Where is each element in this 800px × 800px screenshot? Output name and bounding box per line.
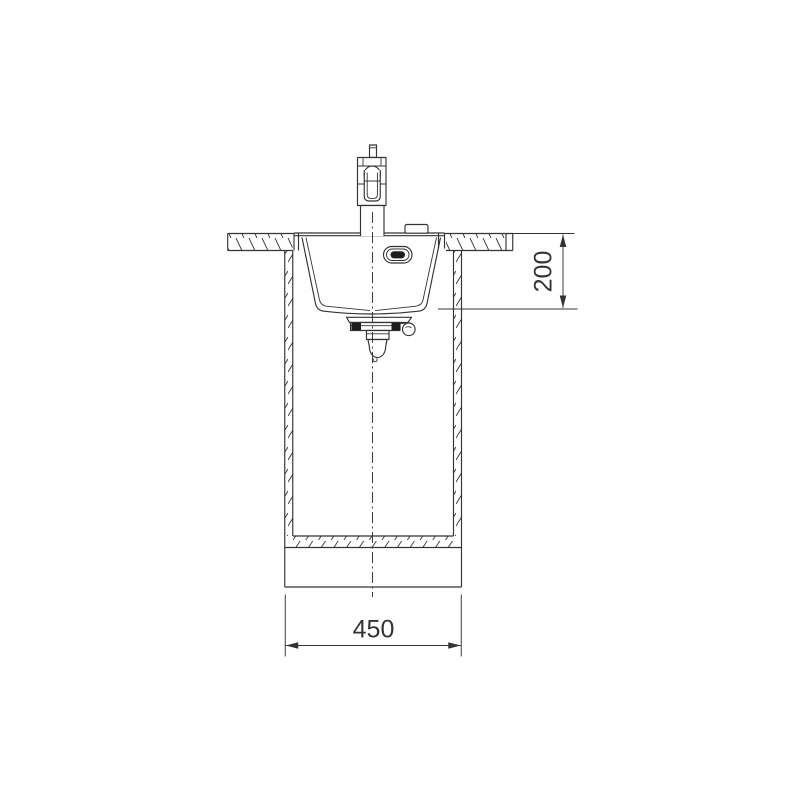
countertop-left-hatch bbox=[228, 234, 293, 251]
depth-dimension-label: 200 bbox=[530, 251, 558, 293]
faucet-head bbox=[358, 158, 387, 206]
cabinet-plinth bbox=[285, 548, 462, 588]
drain-neck bbox=[367, 331, 390, 340]
drain-bell bbox=[368, 340, 387, 362]
cabinet-left-wall bbox=[285, 251, 293, 548]
cabinet-bottom-panel bbox=[293, 536, 454, 548]
overflow-outlet bbox=[384, 247, 413, 264]
dim-arrow-right-icon bbox=[448, 642, 461, 649]
dim-arrow-left-icon bbox=[286, 642, 299, 649]
countertop-right bbox=[445, 234, 513, 251]
drain-flange bbox=[347, 317, 412, 322]
width-dimension: 450 bbox=[285, 595, 461, 657]
dim-arrow-down-icon bbox=[560, 296, 567, 309]
drain-assembly bbox=[347, 317, 416, 361]
drain-trap-elbow bbox=[400, 323, 415, 336]
countertop-right-hatch bbox=[446, 234, 506, 251]
sink-installation-drawing: 200 450 bbox=[0, 0, 800, 800]
width-dimension-label: 450 bbox=[353, 616, 395, 644]
faucet-spout bbox=[364, 170, 380, 201]
drain-clamp-band bbox=[351, 323, 401, 331]
countertop-left bbox=[228, 234, 294, 251]
sink-basin bbox=[294, 225, 445, 315]
cabinet-right-wall bbox=[454, 251, 462, 548]
tap-hole-cover bbox=[405, 225, 428, 234]
cabinet bbox=[285, 251, 462, 588]
faucet-lever bbox=[370, 145, 377, 158]
dim-arrow-up-icon bbox=[560, 235, 567, 248]
faucet bbox=[358, 145, 387, 236]
